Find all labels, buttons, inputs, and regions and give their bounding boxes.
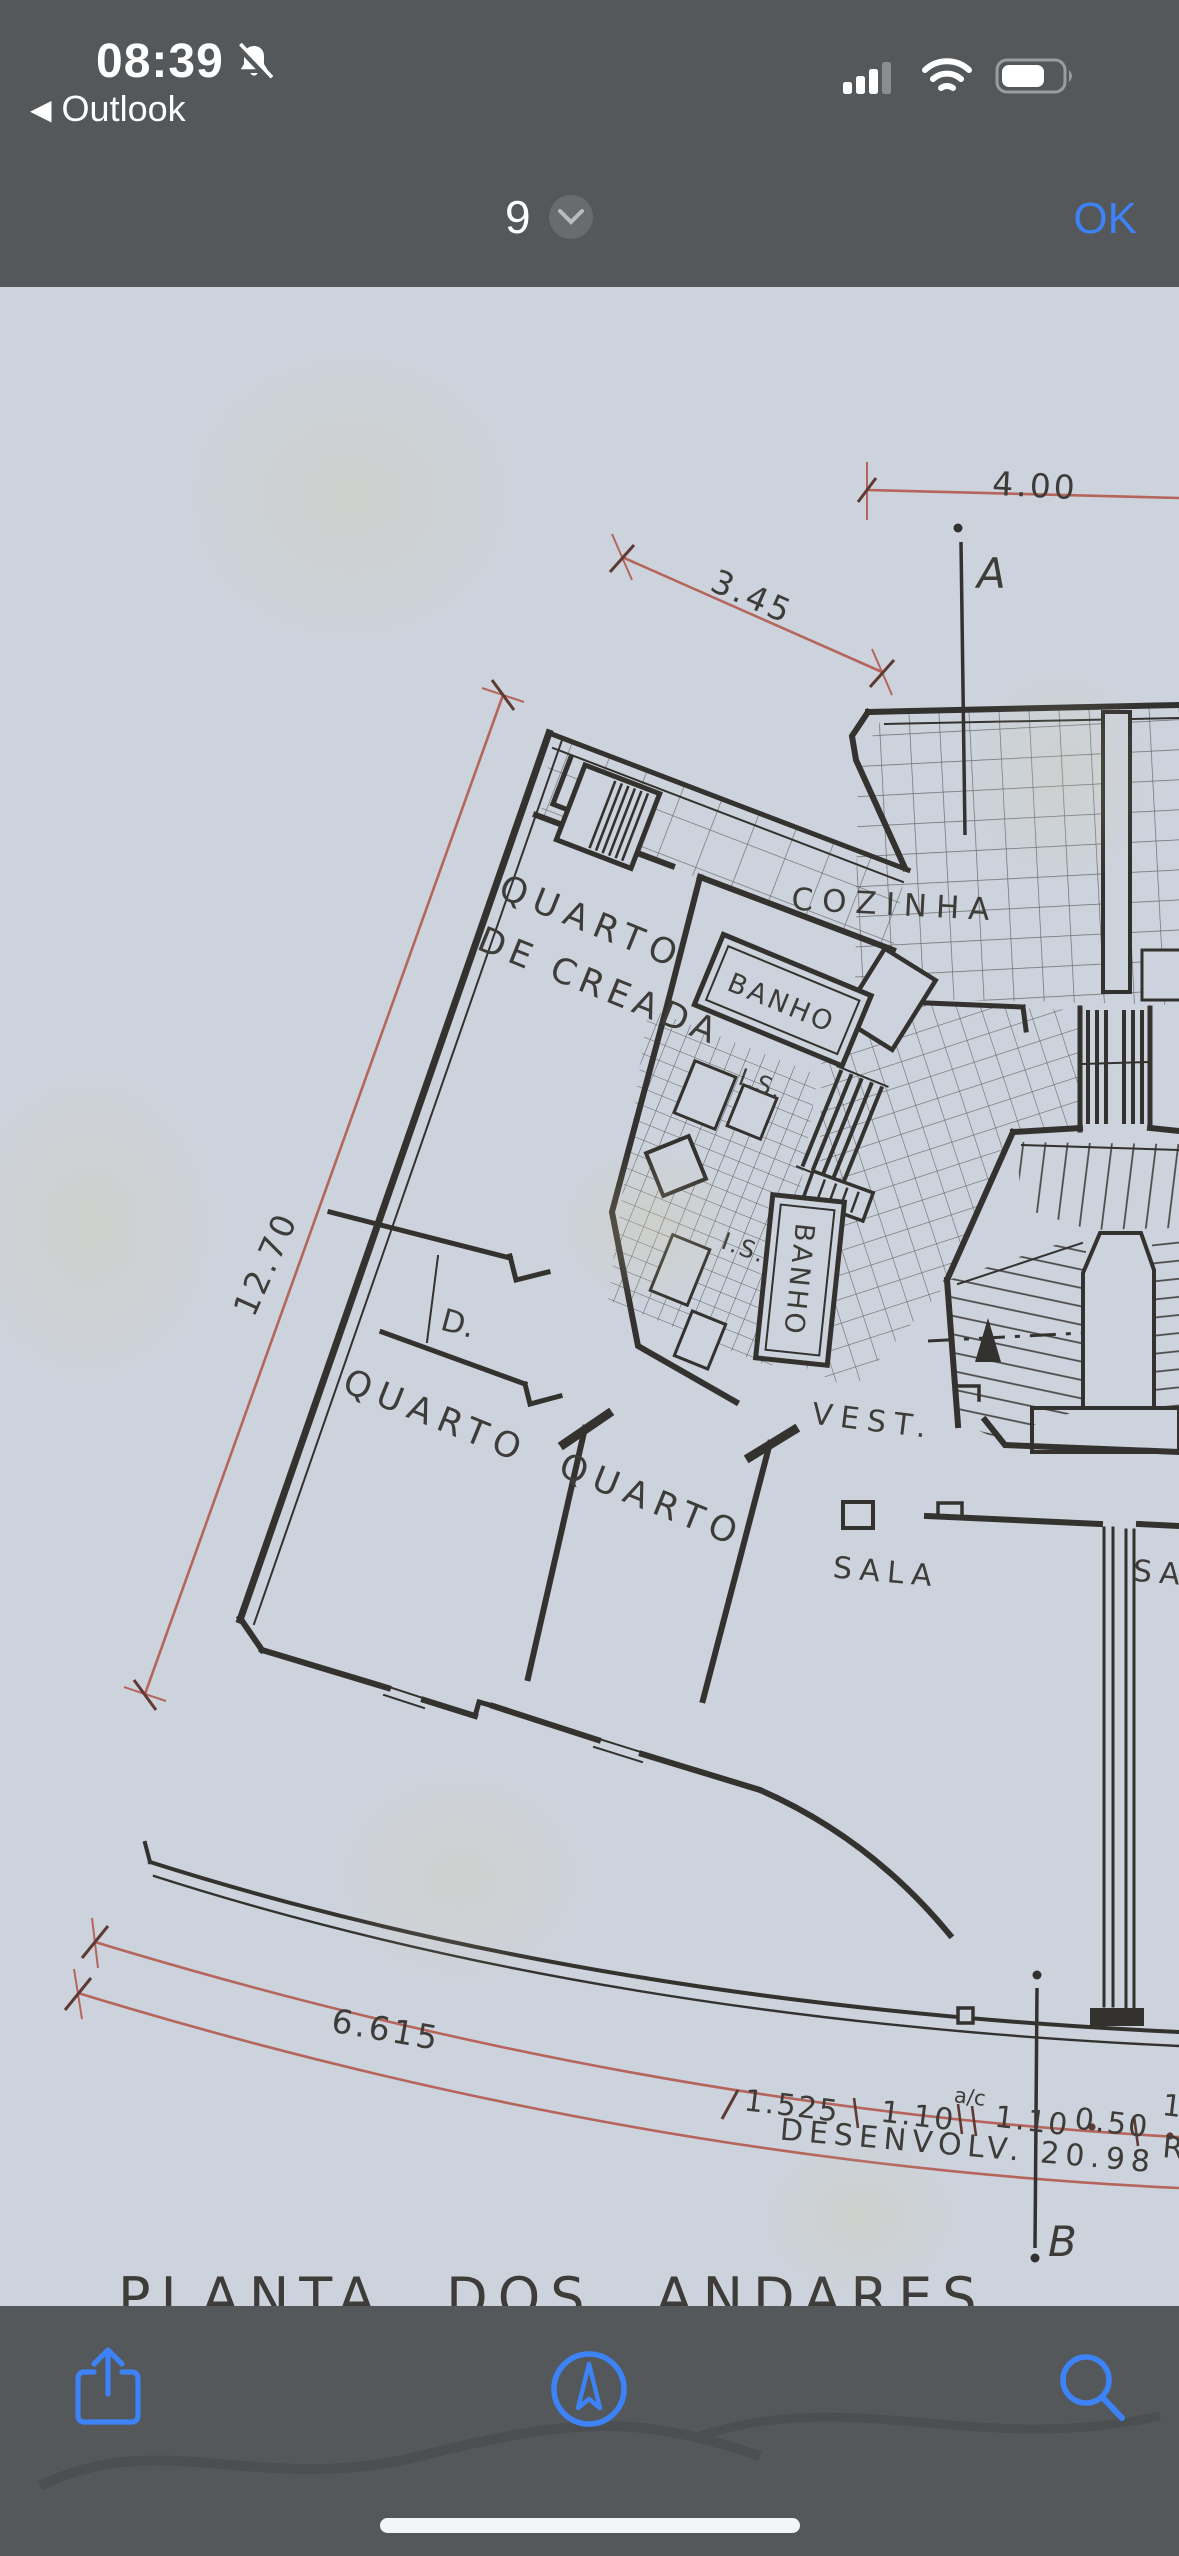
drawing-title: PLANTA DOS ANDARES xyxy=(118,2266,986,2306)
room-label-quarto-2: QUARTO xyxy=(553,1446,750,1556)
floorplan-image[interactable]: BANHO xyxy=(0,287,1179,2306)
page-selector-button[interactable] xyxy=(549,195,593,239)
dim-label-3-45: 3.45 xyxy=(705,561,799,631)
status-bar: 08:39 ◀ Outlook xyxy=(0,0,1179,287)
back-app-label: Outlook xyxy=(62,88,186,130)
dim-label-6-615: 6.615 xyxy=(329,2001,444,2058)
room-label-sala: SALA xyxy=(832,1550,941,1594)
section-mark-a: A xyxy=(974,549,1006,598)
stair-treads-right xyxy=(1152,1235,1179,1415)
back-chevron-icon: ◀ xyxy=(30,93,52,126)
chevron-down-icon xyxy=(558,209,584,225)
share-icon[interactable] xyxy=(70,2346,146,2432)
silenced-bell-icon xyxy=(230,40,278,88)
dim-label-4-00: 4.00 xyxy=(991,464,1078,507)
floorplan-drawing: BANHO xyxy=(0,287,1179,2306)
bathroom-lower: BANHO xyxy=(756,1195,845,1366)
stairwell-void xyxy=(1083,1233,1154,1408)
back-to-outlook-button[interactable]: ◀ Outlook xyxy=(30,88,186,130)
section-mark-b: B xyxy=(1048,2217,1077,2266)
dim-label-12-70: 12.70 xyxy=(225,1206,305,1322)
markup-icon[interactable] xyxy=(548,2348,630,2430)
battery-icon xyxy=(995,56,1079,96)
dim-label-fragment-r: R xyxy=(1161,2130,1179,2167)
room-label-vest: VEST. xyxy=(810,1397,936,1447)
wifi-icon xyxy=(921,58,973,96)
room-label-sala-fragment: SA xyxy=(1131,1554,1179,1594)
search-icon[interactable] xyxy=(1052,2348,1132,2428)
dim-label-fragment-1: 1 xyxy=(1160,2088,1179,2125)
stair-treads-top xyxy=(1016,1142,1179,1230)
dim-label-ac: a/c xyxy=(953,2083,987,2111)
cell-signal-icon xyxy=(843,60,899,96)
ok-button[interactable]: OK xyxy=(1073,194,1137,244)
status-time: 08:39 xyxy=(96,34,224,89)
home-indicator[interactable] xyxy=(380,2518,800,2533)
iphone-screen: BANHO xyxy=(0,0,1179,2556)
room-label-closet: D. xyxy=(437,1302,479,1346)
page-number-label: 9 xyxy=(505,190,531,244)
bottom-toolbar xyxy=(0,2306,1179,2556)
